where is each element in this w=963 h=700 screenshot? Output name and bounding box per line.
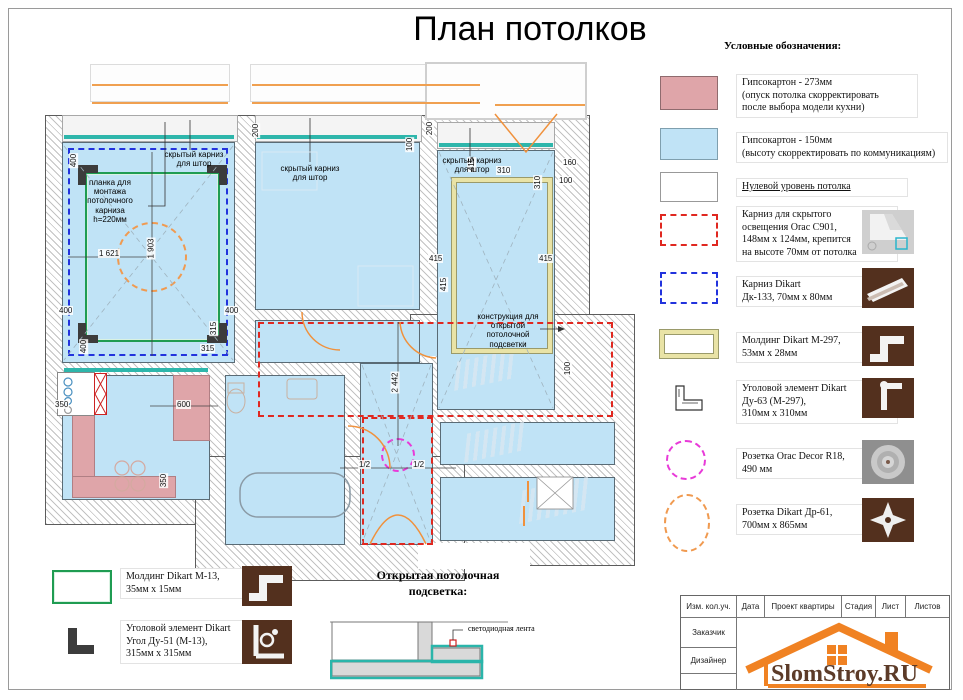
kitchen-riser-box	[57, 372, 95, 416]
label-open-lighting: конструкция для открытой потолочной подс…	[474, 312, 542, 349]
titleblock-cell-empty	[681, 674, 737, 690]
legend-item-label: Уголовой элемент Dikart Угол Ду-51 (М-13…	[120, 620, 262, 664]
dim-label: 100	[563, 361, 572, 376]
titleblock-cell: Дата	[737, 596, 765, 618]
photo-dk133	[862, 268, 914, 308]
legend-header: Условные обозначения:	[724, 40, 841, 52]
dim-label: 400	[69, 153, 78, 168]
titleblock-cell: Изм. кол.уч.	[681, 596, 737, 618]
swatch-molding-m297	[660, 330, 718, 358]
dim-label: 415	[439, 277, 448, 292]
dim-label: 200	[425, 121, 434, 136]
logo: SlomStroy.RU	[737, 618, 950, 690]
titleblock-cell: Проект квартиры	[765, 596, 842, 618]
swatch-corner-du63	[670, 384, 704, 414]
legend-item-label: Молдинг Dikart М-13, 35мм х 15мм	[120, 568, 257, 599]
dim-label: 400	[224, 306, 239, 315]
dim-label: 100	[405, 137, 414, 152]
balcony-right	[425, 62, 587, 120]
corner-element	[219, 323, 227, 343]
open-lighting-heading: Открытая потолочная подсветка:	[338, 568, 538, 599]
curtain-cornice-strip	[64, 135, 234, 139]
dim-label: 100	[558, 176, 573, 185]
window-line	[252, 84, 480, 86]
dim-label: 1/2	[358, 460, 371, 469]
window-line	[252, 102, 480, 104]
photo-dr61	[862, 498, 914, 542]
swatch-rosette-dr61	[664, 494, 710, 552]
dim-label: 415	[428, 254, 443, 263]
swatch-gypsum-150	[660, 128, 718, 160]
swatch-cornice-orac	[660, 214, 718, 246]
rosette-orac-r18	[381, 438, 415, 472]
balcony-left	[90, 64, 230, 102]
dim-label: 1/2	[412, 460, 425, 469]
photo-m297	[862, 326, 914, 366]
title-block: Изм. кол.уч. Дата Проект квартиры Стадия…	[680, 595, 950, 690]
dim-label: 315	[209, 321, 218, 336]
logo-text: SlomStroy.RU	[771, 661, 918, 687]
dim-label: 400	[58, 306, 73, 315]
dim-label: 600	[176, 400, 191, 409]
dim-label: 160	[562, 158, 577, 167]
curtain-cornice-strip	[257, 135, 417, 139]
window-line	[92, 102, 228, 104]
titleblock-cell: Заказчик	[681, 618, 737, 648]
photo-r18	[862, 440, 914, 484]
photo-orac-c901	[862, 210, 914, 254]
dim-label: 350	[159, 473, 168, 488]
cornice-orac-c901-outline	[362, 417, 433, 545]
swatch-zero-level	[660, 172, 718, 202]
logo-chimney	[885, 632, 898, 652]
dim-label: 415	[538, 254, 553, 263]
swatch-molding-m13	[52, 570, 112, 604]
vent-x-icon	[95, 374, 106, 414]
cornice-orac-c901-outline	[258, 322, 613, 417]
legend-item-label: Нулевой уровень потолка	[736, 178, 908, 197]
label-curtain-cornice: скрытый карниз для штор	[158, 150, 230, 168]
vent-shaft	[94, 373, 107, 415]
dim-label: 200	[251, 123, 260, 138]
led-strip-label: светодиодная лента	[468, 624, 535, 633]
window-line	[495, 104, 585, 106]
titleblock-cell: Дизайнер	[681, 648, 737, 674]
titleblock-cell: Листов	[906, 596, 949, 618]
label-mounting-plank: планка для монтажа потолочного карниза h…	[70, 178, 150, 224]
swatch-cornice-dikart	[660, 272, 718, 304]
dim-label: 350	[54, 400, 69, 409]
window-line	[92, 84, 228, 86]
titleblock-cell: Стадия	[842, 596, 876, 618]
curtain-cornice-strip	[439, 143, 553, 147]
dim-label: 310	[533, 175, 542, 190]
legend: Условные обозначения: Гипсокартон - 273м…	[648, 36, 950, 598]
drawing-sheet: План потолков	[0, 0, 963, 700]
floor-plan: скрытый карниз для штор скрытый карниз д…	[40, 56, 640, 581]
legend-item-label: Гипсокартон - 150мм (высоту скорректиров…	[736, 132, 948, 163]
label-curtain-cornice: скрытый карниз для штор	[440, 156, 504, 174]
swatch-corner-du51	[68, 628, 94, 654]
dim-label: 2 442	[391, 371, 400, 393]
photo-du63	[862, 378, 914, 418]
dim-label: 315	[200, 344, 215, 353]
photo-du51	[242, 620, 292, 664]
swatch-gypsum-273	[660, 76, 718, 110]
swatch-rosette-r18	[666, 440, 706, 480]
entry-door-opening	[418, 543, 530, 569]
photo-m13	[242, 566, 292, 606]
legend-item-label: Гипсокартон - 273мм (опуск потолка скорр…	[736, 74, 918, 118]
label-curtain-cornice: скрытый карниз для штор	[265, 164, 355, 182]
dim-label: 1 903	[147, 237, 156, 259]
dim-label: 1 621	[98, 249, 120, 258]
dim-label: 400	[79, 339, 88, 354]
titleblock-cell: Лист	[876, 596, 906, 618]
